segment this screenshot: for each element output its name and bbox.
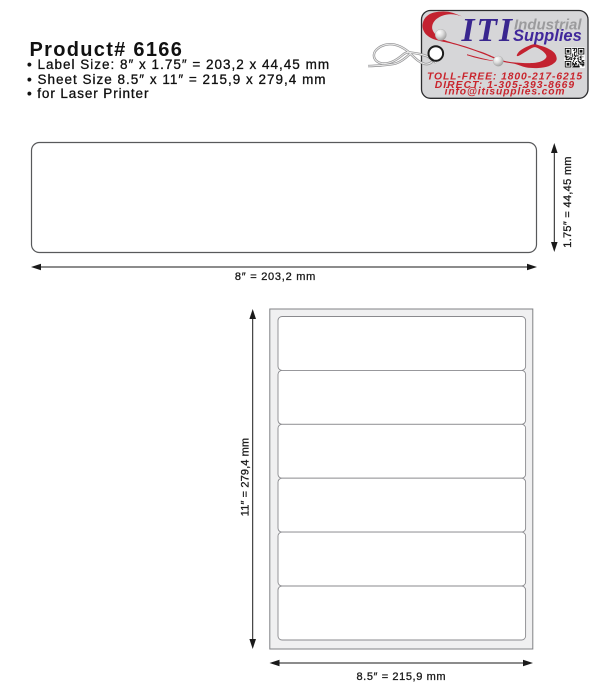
svg-text:1.75″ = 44,45 mm: 1.75″ = 44,45 mm — [562, 156, 574, 248]
svg-text:info@itisupplies.com: info@itisupplies.com — [445, 86, 566, 97]
svg-text:11″ = 279,4 mm: 11″ = 279,4 mm — [239, 438, 251, 516]
svg-text:Supplies: Supplies — [513, 27, 582, 45]
svg-text:ITI: ITI — [461, 12, 515, 49]
svg-text:8″ = 203,2 mm: 8″ = 203,2 mm — [235, 271, 316, 283]
svg-text:8.5″ = 215,9 mm: 8.5″ = 215,9 mm — [356, 671, 446, 683]
